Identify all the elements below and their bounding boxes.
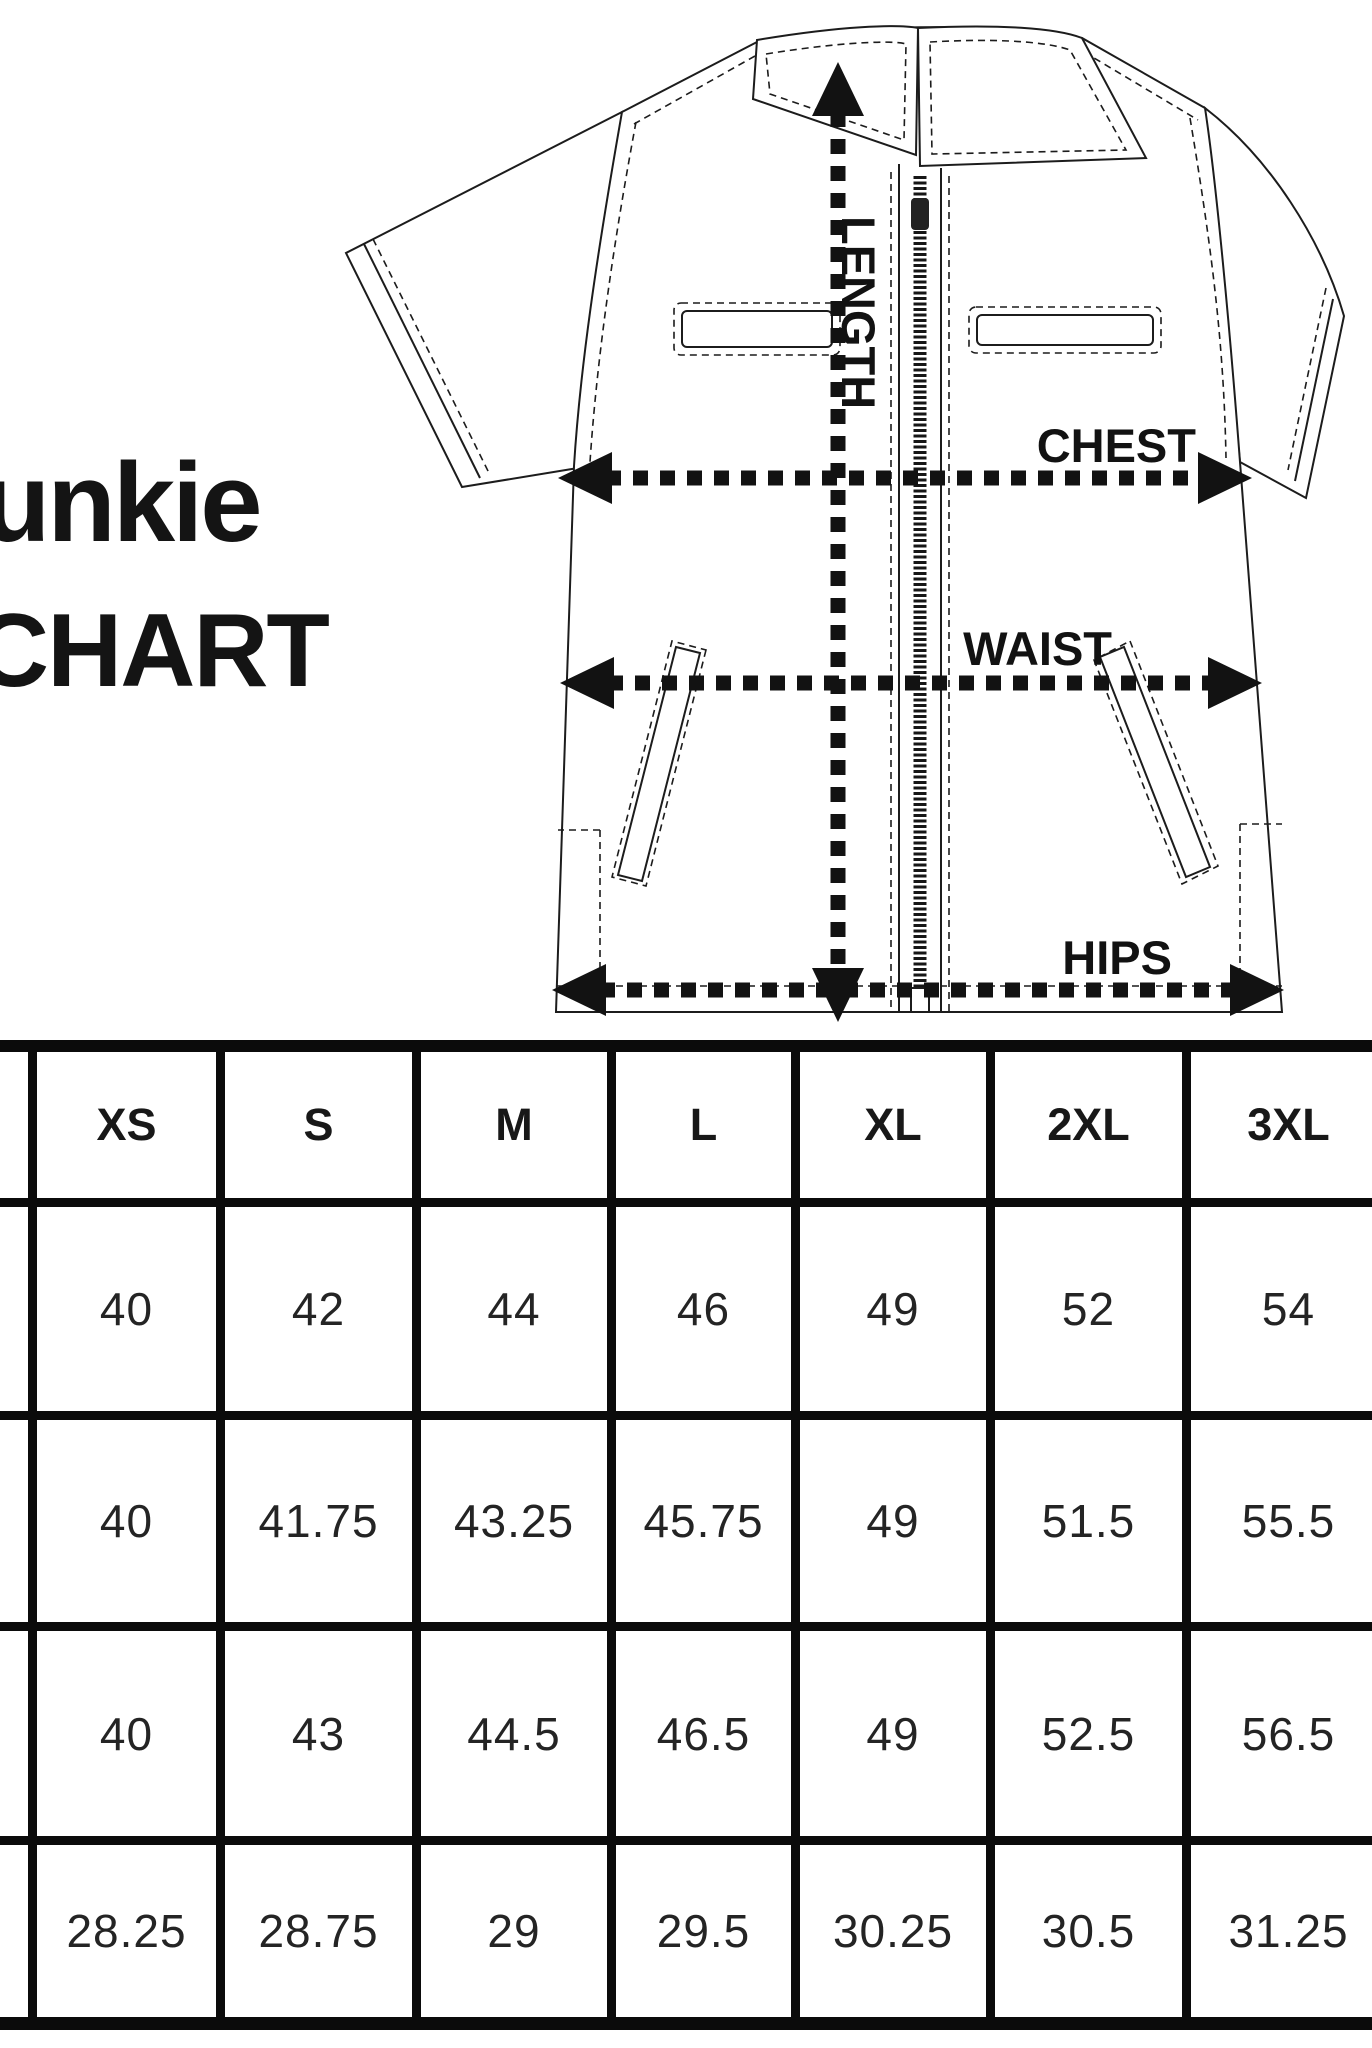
table-cell: 42 bbox=[225, 1207, 412, 1411]
table-cell: 29 bbox=[421, 1845, 607, 2017]
row-label-cell-cut bbox=[0, 1845, 28, 2017]
size-chart-page: { "brand": { "line1": "unkie", "line2": … bbox=[0, 0, 1372, 2048]
row-label-cell-cut bbox=[0, 1631, 28, 1836]
table-cell: 44.5 bbox=[421, 1631, 607, 1836]
zipper-slider bbox=[911, 198, 929, 230]
table-cell: 43 bbox=[225, 1631, 412, 1836]
row-label-cell-cut bbox=[0, 1207, 28, 1411]
table-cell: 49 bbox=[800, 1207, 986, 1411]
col-header-xl: XL bbox=[800, 1052, 986, 1198]
col-header-3xl: 3XL bbox=[1191, 1052, 1372, 1198]
col-header-2xl: 2XL bbox=[995, 1052, 1182, 1198]
table-cell: 28.75 bbox=[225, 1845, 412, 2017]
col-header-l: L bbox=[616, 1052, 791, 1198]
col-header-m: M bbox=[421, 1052, 607, 1198]
table-cell: 49 bbox=[800, 1420, 986, 1622]
table-cell: 31.25 bbox=[1191, 1845, 1372, 2017]
table-cell: 44 bbox=[421, 1207, 607, 1411]
col-header-s: S bbox=[225, 1052, 412, 1198]
table-cell: 46.5 bbox=[616, 1631, 791, 1836]
size-table: XS S M L XL 2XL 3XL 40 42 44 46 49 52 54… bbox=[0, 1040, 1372, 2030]
table-cell: 46 bbox=[616, 1207, 791, 1411]
table-cell: 40 bbox=[37, 1207, 216, 1411]
table-cell: 30.25 bbox=[800, 1845, 986, 2017]
garment-measurement-diagram: LENGTH CHEST WAIST HIPS bbox=[0, 0, 1372, 1040]
row-label-cell-cut bbox=[0, 1052, 28, 1198]
table-cell: 41.75 bbox=[225, 1420, 412, 1622]
table-cell: 28.25 bbox=[37, 1845, 216, 2017]
col-header-xs: XS bbox=[37, 1052, 216, 1198]
length-label: LENGTH bbox=[832, 216, 885, 409]
table-cell: 51.5 bbox=[995, 1420, 1182, 1622]
waist-label: WAIST bbox=[963, 622, 1112, 675]
table-cell: 52 bbox=[995, 1207, 1182, 1411]
table-cell: 40 bbox=[37, 1420, 216, 1622]
table-cell: 40 bbox=[37, 1631, 216, 1836]
table-cell: 56.5 bbox=[1191, 1631, 1372, 1836]
table-cell: 52.5 bbox=[995, 1631, 1182, 1836]
table-cell: 29.5 bbox=[616, 1845, 791, 2017]
table-cell: 43.25 bbox=[421, 1420, 607, 1622]
table-cell: 30.5 bbox=[995, 1845, 1182, 2017]
hips-label: HIPS bbox=[1062, 931, 1172, 984]
table-cell: 49 bbox=[800, 1631, 986, 1836]
table-cell: 55.5 bbox=[1191, 1420, 1372, 1622]
chest-label: CHEST bbox=[1037, 419, 1197, 472]
table-cell: 54 bbox=[1191, 1207, 1372, 1411]
table-cell: 45.75 bbox=[616, 1420, 791, 1622]
row-label-cell-cut bbox=[0, 1420, 28, 1622]
